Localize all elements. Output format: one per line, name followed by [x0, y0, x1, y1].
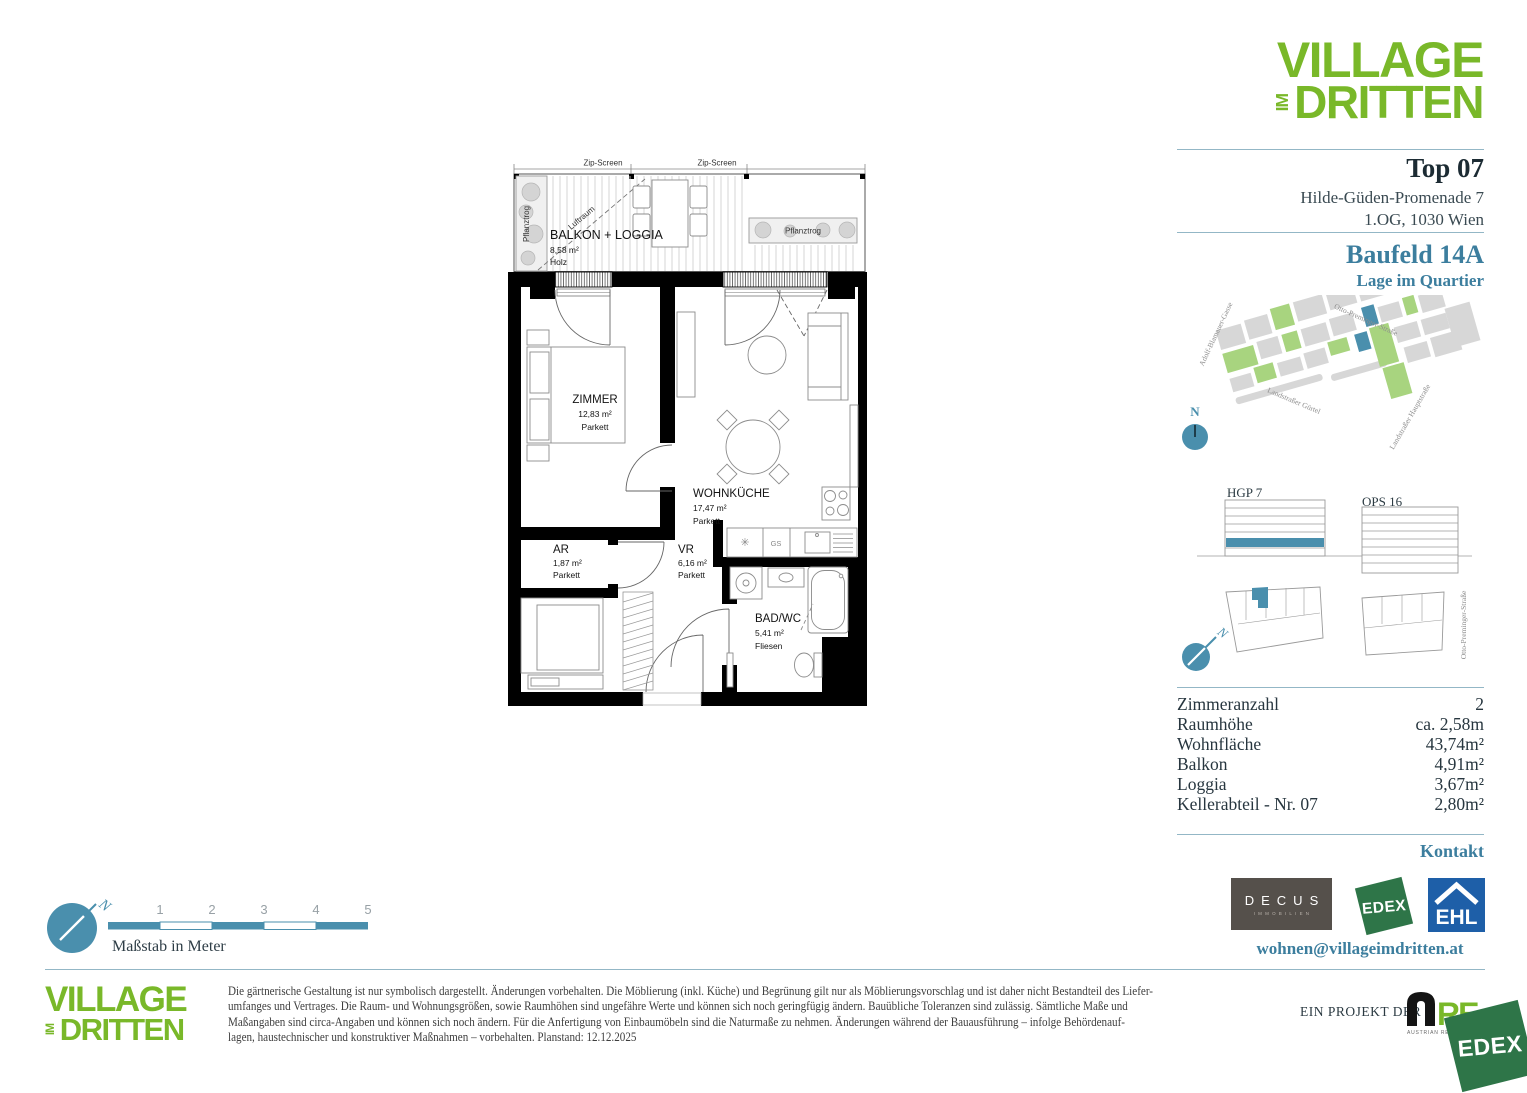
room-floor: Parkett: [678, 570, 706, 580]
decus-subline: IMMOBILIEN: [1254, 911, 1313, 916]
scale-caption: Maßstab in Meter: [112, 938, 226, 956]
edex-logo: EDEX: [1348, 871, 1420, 941]
fridge-symbol-icon: ✳: [740, 537, 749, 549]
row-label: Raumhöhe: [1177, 714, 1253, 734]
table-row: Raumhöheca. 2,58m: [1177, 714, 1484, 734]
disclaimer: Die gärtnerische Gestaltung ist nur symb…: [228, 984, 1165, 1046]
brand-line2: DRITTEN: [1294, 82, 1483, 122]
zip-screen-line: [514, 164, 865, 174]
divider: [1177, 687, 1484, 688]
room-area: 17,47 m²: [693, 503, 727, 513]
disclaimer-line: umfanges und Vertrages. Die Raum- und Wo…: [228, 999, 1165, 1014]
kontakt-heading: Kontakt: [1177, 841, 1484, 862]
pflanztrog-label: Pflanztrog: [785, 227, 821, 236]
decus-wordmark: DECUS: [1245, 893, 1326, 908]
page-title: Top 07: [1177, 153, 1484, 184]
contact-email-link[interactable]: wohnen@villageimdritten.at: [1235, 939, 1485, 959]
divider: [1177, 232, 1484, 233]
ehl-wordmark: EHL: [1436, 906, 1478, 929]
row-label: Wohnfläche: [1177, 734, 1261, 754]
zip-screen-label: Zip-Screen: [697, 159, 736, 168]
north-compass-icon: N: [1182, 404, 1208, 450]
row-label: Balkon: [1177, 754, 1228, 774]
planter-right: Pflanztrog: [749, 218, 857, 243]
pflanztrog-label: Pflanztrog: [522, 206, 531, 242]
are-arch-icon: [1407, 992, 1435, 1026]
north-compass-icon: N: [1182, 623, 1232, 671]
brand-logo-footer: VILLAGE IM DRITTEN: [45, 985, 186, 1043]
room-area: 8,58 m²: [550, 245, 579, 255]
plan-sheet-page: { "page": {"accent_blue": "#4a8fad", "br…: [0, 0, 1527, 1080]
site-diagrams: HGP 7 OPS 16 Otto-Preminger-Straße N: [1178, 480, 1485, 685]
scale-tick: 1: [156, 902, 163, 917]
table-row: Kellerabteil - Nr. 072,80m²: [1177, 794, 1484, 814]
entrance-threshold: [643, 693, 701, 705]
row-value: ca. 2,58m: [1415, 714, 1484, 734]
elevation-ops16: [1362, 507, 1458, 573]
north-letter: N: [1214, 623, 1232, 642]
room-floor: Parkett: [553, 570, 581, 580]
disclaimer-line: lagen, haustechnischer und konstruktiver…: [228, 1030, 1165, 1045]
table-row: Balkon4,91m²: [1177, 754, 1484, 774]
street-label-vertical: Otto-Preminger-Straße: [1459, 590, 1468, 659]
room-floor: Fliesen: [755, 641, 783, 651]
disclaimer-line: Die gärtnerische Gestaltung ist nur symb…: [228, 984, 1165, 999]
ehl-logo: EHL: [1428, 878, 1485, 932]
brand-im: IM: [1274, 94, 1291, 111]
room-floor: Parkett: [693, 516, 721, 526]
room-name: WOHNKÜCHE: [693, 488, 770, 500]
floorplate-hgp7: [1226, 587, 1323, 652]
brand-line2: DRITTEN: [60, 1016, 184, 1043]
brand-im: IM: [45, 1024, 57, 1035]
living-furniture: [677, 312, 848, 484]
floor-plan: Zip-Screen Zip-Screen Pflanztrog Pflanzt…: [505, 150, 873, 710]
row-value: 2,80m²: [1435, 794, 1484, 814]
address-line2: 1.OG, 1030 Wien: [1177, 209, 1484, 231]
table-row: Zimmeranzahl2: [1177, 694, 1484, 714]
table-row: Loggia3,67m²: [1177, 774, 1484, 794]
room-area: 5,41 m²: [755, 628, 784, 638]
room-area: 1,87 m²: [553, 558, 582, 568]
divider: [1177, 149, 1484, 150]
address: Hilde-Güden-Promenade 7 1.OG, 1030 Wien: [1177, 187, 1484, 231]
zip-screen-label: Zip-Screen: [583, 159, 622, 168]
scale-segments: [108, 922, 368, 930]
scale-tick: 5: [364, 902, 371, 917]
street-label-bottom: Landstraßer Gürtel: [1266, 385, 1322, 416]
row-value: 3,67m²: [1435, 774, 1484, 794]
scale-tick: 4: [312, 902, 319, 917]
elevator-shaft: [521, 598, 603, 689]
row-label: Zimmeranzahl: [1177, 694, 1279, 714]
footer-divider: [45, 969, 1485, 970]
project-note: EIN PROJEKT DER: [1300, 1004, 1421, 1020]
row-value: 4,91m²: [1435, 754, 1484, 774]
scale-bar: 1 2 3 4 5: [100, 898, 390, 938]
address-line1: Hilde-Güden-Promenade 7: [1177, 187, 1484, 209]
row-value: 2: [1475, 694, 1484, 714]
room-name: AR: [553, 544, 569, 556]
row-value: 43,74m²: [1426, 734, 1484, 754]
divider: [1177, 834, 1484, 835]
room-floor: Parkett: [582, 422, 610, 432]
elevation-hgp7: [1225, 500, 1325, 556]
highlighted-floor: [1226, 538, 1324, 547]
details-table: Zimmeranzahl2 Raumhöheca. 2,58m Wohnfläc…: [1177, 694, 1484, 814]
baufeld-subtitle: Lage im Quartier: [1177, 271, 1484, 291]
room-floor: Holz: [550, 257, 567, 267]
dishwasher-label: GS: [771, 539, 782, 548]
room-name: BALKON + LOGGIA: [550, 228, 664, 242]
room-name: ZIMMER: [572, 394, 617, 406]
scale-tick: 3: [260, 902, 267, 917]
quarter-map: Adolf-Blamauer-Gasse Otto-Preminger-Stra…: [1178, 295, 1485, 467]
row-label: Loggia: [1177, 774, 1227, 794]
disclaimer-line: Maßangaben sind circa-Angaben und können…: [228, 1015, 1165, 1030]
brand-logo-top: VILLAGE IM DRITTEN: [1274, 38, 1483, 122]
north-letter: N: [1190, 404, 1200, 419]
room-area: 6,16 m²: [678, 558, 707, 568]
baufeld-title: Baufeld 14A: [1177, 240, 1484, 270]
table-row: Wohnfläche43,74m²: [1177, 734, 1484, 754]
edex-logo-large: EDEX: [1438, 998, 1527, 1093]
room-area: 12,83 m²: [578, 409, 612, 419]
floorplate-ops16: [1362, 592, 1444, 655]
building-left-label: HGP 7: [1227, 485, 1263, 500]
row-label: Kellerabteil - Nr. 07: [1177, 794, 1318, 814]
decus-logo: DECUS IMMOBILIEN: [1231, 878, 1332, 930]
scale-tick: 2: [208, 902, 215, 917]
planter-left: Pflanztrog: [516, 176, 547, 271]
room-name: BAD/WC: [755, 613, 801, 625]
room-name: VR: [678, 544, 694, 556]
